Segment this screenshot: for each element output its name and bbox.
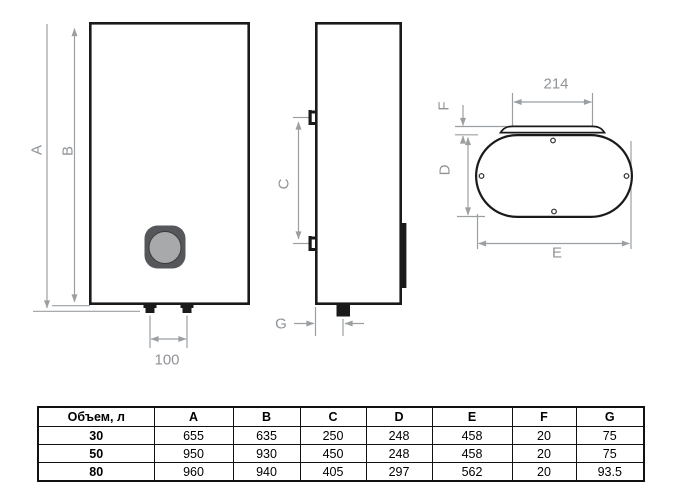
side-view	[309, 23, 407, 316]
cell-C: 405	[300, 463, 366, 482]
cell-volume: 80	[38, 463, 154, 482]
fitting-top-flange	[309, 110, 312, 125]
dim-label-D: D	[438, 165, 453, 176]
cell-G: 75	[576, 427, 644, 445]
col-header-volume: Объем, л	[38, 407, 154, 427]
table-row-50: 50 950 930 450 248 458 20 75	[38, 445, 644, 463]
cell-F: 20	[512, 427, 576, 445]
side-pipe-fittings	[309, 110, 317, 251]
cell-G: 93.5	[576, 463, 644, 482]
cell-E: 458	[432, 445, 512, 463]
pipe-flange-right	[181, 304, 194, 308]
col-header-E: E	[432, 407, 512, 427]
fitting-bottom-flange	[309, 236, 312, 251]
wall-mount-bracket	[402, 223, 407, 288]
front-pipes	[144, 304, 194, 313]
fitting-top-tick-1	[312, 111, 317, 114]
dim-label-B: B	[61, 146, 76, 156]
col-header-C: C	[300, 407, 366, 427]
fitting-bottom-tick-1	[312, 237, 317, 240]
dim-label-G: G	[275, 317, 287, 332]
cell-D: 248	[366, 427, 432, 445]
col-header-F: F	[512, 407, 576, 427]
cell-B: 930	[233, 445, 300, 463]
table-row-80: 80 960 940 405 297 562 20 93.5	[38, 463, 644, 482]
cell-D: 297	[366, 463, 432, 482]
col-header-A: A	[154, 407, 233, 427]
cell-B: 940	[233, 463, 300, 482]
cell-C: 250	[300, 427, 366, 445]
dim-label-100: 100	[154, 353, 179, 368]
cell-G: 75	[576, 445, 644, 463]
col-header-D: D	[366, 407, 432, 427]
mounting-flange	[501, 126, 605, 132]
table-header-row: Объем, л A B C D E F G	[38, 407, 644, 427]
screw-hole-left	[479, 174, 484, 179]
cell-E: 458	[432, 427, 512, 445]
dim-label-F: F	[437, 101, 452, 110]
cell-B: 635	[233, 427, 300, 445]
cell-E: 562	[432, 463, 512, 482]
thermostat-knob	[149, 232, 181, 264]
table-row-30: 30 655 635 250 248 458 20 75	[38, 427, 644, 445]
cell-D: 248	[366, 445, 432, 463]
cell-A: 960	[154, 463, 233, 482]
fitting-top-tick-2	[312, 122, 317, 125]
pipe-stem-right	[183, 308, 192, 313]
side-bottom-pipe	[337, 303, 351, 317]
top-view	[476, 126, 632, 217]
cell-F: 20	[512, 445, 576, 463]
screw-hole-right	[624, 174, 629, 179]
dim-label-E: E	[552, 246, 562, 261]
cell-volume: 50	[38, 445, 154, 463]
screw-hole-top	[551, 138, 556, 143]
screw-hole-bottom	[552, 209, 557, 214]
pipe-stem-left	[146, 308, 155, 313]
dim-label-214: 214	[543, 77, 568, 92]
front-view	[90, 23, 248, 313]
cell-F: 20	[512, 463, 576, 482]
dim-label-A: A	[30, 145, 45, 155]
fitting-bottom-tick-2	[312, 248, 317, 251]
cell-A: 950	[154, 445, 233, 463]
top-body-oval	[476, 135, 632, 217]
cell-C: 450	[300, 445, 366, 463]
dim-label-C: C	[277, 179, 292, 190]
dimensions-table: Объем, л A B C D E F G 30 655 635 250 24…	[37, 406, 645, 482]
col-header-B: B	[233, 407, 300, 427]
water-heater-dimension-drawing: A B C G 100 F D 214 E Объем, л A B C D E…	[0, 0, 699, 489]
side-body	[316, 23, 400, 303]
cell-volume: 30	[38, 427, 154, 445]
cell-A: 655	[154, 427, 233, 445]
pipe-flange-left	[144, 304, 157, 308]
col-header-G: G	[576, 407, 644, 427]
